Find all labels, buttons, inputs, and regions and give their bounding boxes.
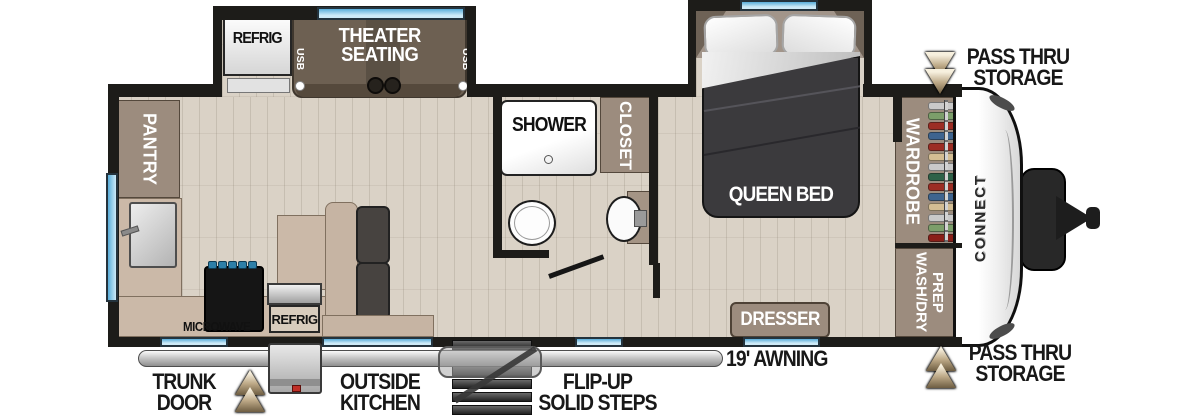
- brand-logo-text: CONNECT: [972, 174, 989, 262]
- closet: CLOSET: [600, 97, 650, 173]
- bath-wall-right: [649, 97, 658, 265]
- refrig-drawer: [227, 78, 290, 93]
- blanket-fold-line: [704, 126, 864, 156]
- cap-graphic-swoosh: [987, 320, 1016, 342]
- pass-thru-storage-top-label: PASS THRU STORAGE: [963, 47, 1072, 88]
- wash-dry-prep-label: WASH/DRY PREP: [912, 252, 945, 332]
- wardrobe-wall-stub: [893, 97, 902, 142]
- shower: SHOWER: [500, 100, 597, 176]
- stove-knob: [218, 261, 227, 269]
- outside-refrig-box: REFRIG: [269, 305, 320, 333]
- bath-faucet: [634, 210, 647, 227]
- bath-wall-left: [493, 97, 502, 258]
- window-theater-slide: [317, 7, 465, 20]
- bath-wall-bottom: [493, 250, 549, 258]
- awning-bar: [138, 350, 723, 367]
- window-bottom-1: [160, 337, 228, 347]
- blanket-fold-line: [704, 85, 864, 112]
- flip-up-steps-label: FLIP-UP SOLID STEPS: [534, 372, 662, 413]
- bench-base: [322, 315, 434, 337]
- window-bed-slide: [740, 0, 818, 11]
- slideout-refrigerator: REFRIG: [223, 12, 292, 76]
- toilet-bowl-line: [514, 206, 550, 240]
- slideout-refrig-label: REFRIG: [233, 30, 282, 48]
- cupholder: [384, 77, 401, 94]
- theater-seating-label: THEATER SEATING: [339, 27, 421, 65]
- bed-slide-wall-left: [688, 0, 696, 97]
- pass-thru-bottom-arrow-icon: [926, 346, 956, 388]
- pantry-cabinet: PANTRY: [118, 100, 180, 198]
- wardrobe-rod: [944, 100, 948, 242]
- kitchen-sink: [129, 202, 177, 268]
- microwave-label: MICROWAVE: [183, 320, 250, 334]
- pass-thru-storage-bottom-label: PASS THRU STORAGE: [965, 343, 1074, 384]
- arrow-triangle: [925, 69, 955, 94]
- wardrobe: WARDROBE: [895, 97, 962, 245]
- recliner-button: [295, 81, 305, 91]
- rv-floorplan: PANTRY MICROWAVE REFRIG REFRIG THEATER S…: [0, 0, 1200, 417]
- window-rear-wall: [106, 173, 118, 302]
- trunk-door-label: TRUNK DOOR: [139, 372, 229, 413]
- shower-drain: [544, 155, 553, 164]
- bed-slide-wall-right: [864, 0, 872, 97]
- cupholder: [367, 77, 384, 94]
- wardrobe-divider: [895, 243, 962, 248]
- outside-kitchen-unit: [268, 343, 322, 394]
- trunk-door-arrow-icon: [235, 370, 265, 412]
- pantry-label: PANTRY: [139, 113, 160, 185]
- bench-backrest: [325, 202, 358, 320]
- cap-graphic-line: [996, 130, 1014, 310]
- cap-graphic-swoosh: [987, 92, 1016, 114]
- stove-knob: [228, 261, 237, 269]
- pass-thru-top-arrow-icon: [925, 52, 955, 94]
- stove-knob: [208, 261, 217, 269]
- queen-bed-label: QUEEN BED: [729, 183, 833, 207]
- wash-dry-prep-cabinet: WASH/DRY PREP: [895, 248, 962, 337]
- shower-label: SHOWER: [512, 114, 586, 137]
- bedroom-partition-wall: [653, 263, 660, 298]
- outside-refrig-top: [267, 283, 322, 305]
- closet-label: CLOSET: [615, 101, 635, 170]
- window-bottom-3: [575, 337, 623, 347]
- outside-kitchen-label: OUTSIDE KITCHEN: [336, 372, 424, 413]
- hitch-coupler: [1086, 207, 1100, 229]
- brand-logo: CONNECT: [970, 143, 990, 293]
- wall-top-rear: [108, 84, 222, 97]
- outside-kitchen-valve: [292, 385, 301, 392]
- awning-label: 19' AWNING: [726, 349, 832, 370]
- wardrobe-label: WARDROBE: [902, 118, 923, 225]
- wall-top-mid: [471, 84, 693, 97]
- bench-cushion: [356, 262, 390, 320]
- bench-cushion: [356, 206, 390, 264]
- dresser: DRESSER: [730, 302, 830, 338]
- stove-knob: [238, 261, 247, 269]
- stove-knob: [248, 261, 257, 269]
- outside-refrig-label: REFRIG: [271, 312, 317, 327]
- step-tread: [452, 405, 532, 415]
- dresser-label: DRESSER: [740, 309, 820, 331]
- usb-port-label-left: USB: [294, 48, 306, 70]
- toilet: [508, 200, 556, 246]
- window-bottom-2: [322, 337, 433, 347]
- outside-kitchen-cabinet: [277, 215, 327, 290]
